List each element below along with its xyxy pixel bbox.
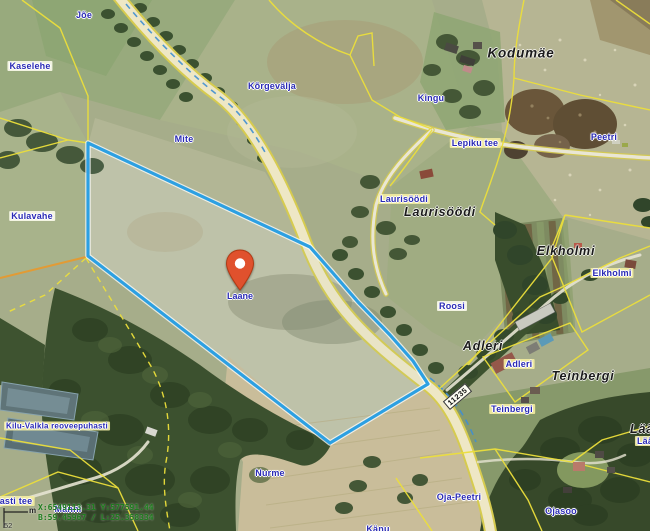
parcel-label-kulavahe: Kulavahe — [9, 211, 55, 221]
parcel-label-peetri: Peetri — [591, 132, 617, 142]
parcel-label-laurisoodi: Laurisöödi — [378, 194, 430, 204]
village-label-kodumae: Kodumäe — [487, 46, 554, 61]
road-label-lepiku-tee: Lepiku tee — [450, 138, 501, 148]
parcel-label-elkholmi: Elkholmi — [590, 268, 633, 278]
village-label-laa: Lää — [630, 422, 650, 436]
pin-label: Laane — [227, 291, 253, 301]
parcel-label-korgevalja: Kõrgevälja — [248, 81, 296, 91]
village-label-teinbergi: Teinbergi — [552, 369, 615, 383]
coords-bl: B:59.45967 / L:25.358334 — [38, 513, 154, 523]
location-pin[interactable] — [225, 249, 255, 291]
village-label-laurisoodi: Laurisöödi — [404, 205, 476, 219]
parcel-label-laa: Lää — [635, 436, 650, 446]
parcel-label-adleri: Adleri — [504, 359, 535, 369]
coords-xy: X:6549113.31 Y:577591.44 — [38, 503, 154, 513]
parcel-label-nurme: Nurme — [255, 468, 285, 478]
parcel-label-oja-peetri: Oja-Peetri — [437, 492, 482, 502]
pin-icon — [227, 250, 254, 290]
parcel-label-joe: Jõe — [76, 10, 92, 20]
parcel-label-ojasoo: Ojasoo — [545, 506, 577, 516]
parcel-label-roosi: Roosi — [437, 301, 467, 311]
map-terrain — [0, 0, 650, 531]
map-canvas[interactable]: Jõe Kaselehe Mite Kõrgevälja Kingu Lepik… — [0, 0, 650, 531]
parcel-label-mite: Mite — [175, 134, 194, 144]
cursor-coordinates: X:6549113.31 Y:577591.44 B:59.45967 / L:… — [38, 503, 154, 523]
parcel-label-teinbergi: Teinbergi — [489, 404, 535, 414]
parcel-label-kilu-valkla: Kilu-Valkla reoveepuhasti — [4, 422, 110, 431]
scalebar-number: 52 — [4, 521, 12, 530]
village-label-adleri: Adleri — [463, 339, 503, 353]
parcel-label-kingu: Kingu — [418, 93, 445, 103]
pin-hole — [235, 258, 245, 268]
parcel-label-kanu: Känu — [366, 524, 389, 531]
village-label-elkholmi: Elkholmi — [537, 244, 596, 258]
scalebar-unit: m — [29, 506, 36, 515]
parcel-label-kaselehe: Kaselehe — [7, 61, 52, 71]
